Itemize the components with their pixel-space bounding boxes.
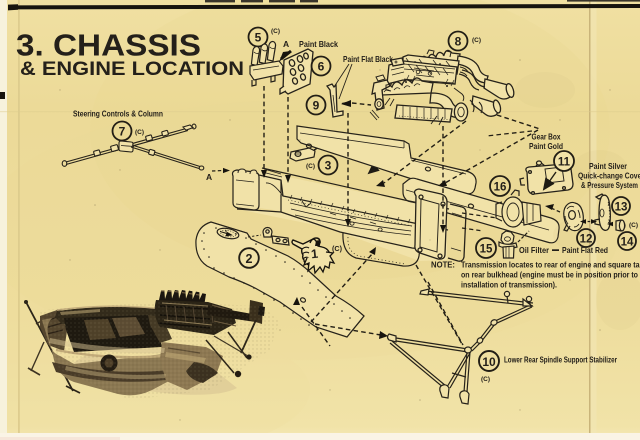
- svg-text:6: 6: [318, 60, 325, 74]
- svg-text:NOTE:: NOTE:: [431, 260, 455, 270]
- svg-text:12: 12: [580, 234, 593, 246]
- svg-text:on rear bulkhead (engine must: on rear bulkhead (engine must be in posi…: [461, 270, 638, 280]
- svg-text:(C): (C): [472, 37, 481, 44]
- svg-text:A: A: [283, 39, 289, 49]
- svg-text:5: 5: [255, 31, 262, 45]
- svg-text:Quick-change Cover: Quick-change Cover: [578, 171, 640, 181]
- svg-text:installation of transmission).: installation of transmission).: [461, 280, 557, 290]
- svg-text:& ENGINE LOCATION: & ENGINE LOCATION: [20, 58, 244, 80]
- svg-text:Paint Silver: Paint Silver: [589, 161, 628, 171]
- svg-text:A: A: [206, 172, 212, 182]
- svg-text:2: 2: [246, 252, 253, 266]
- svg-text:11: 11: [558, 157, 571, 169]
- svg-text:16: 16: [494, 182, 507, 194]
- svg-text:3: 3: [325, 159, 332, 173]
- svg-text:(C): (C): [629, 222, 638, 229]
- svg-text:Gear Box: Gear Box: [532, 132, 561, 142]
- svg-text:7: 7: [119, 125, 126, 139]
- svg-text:& Pressure System: & Pressure System: [581, 180, 638, 190]
- svg-text:Steering Controls & Column: Steering Controls & Column: [73, 109, 163, 119]
- svg-text:8: 8: [455, 35, 462, 49]
- svg-text:10: 10: [482, 355, 496, 369]
- svg-text:(C): (C): [271, 28, 280, 35]
- svg-text:Paint Flat Black: Paint Flat Black: [343, 54, 393, 64]
- svg-text:9: 9: [313, 99, 320, 113]
- svg-text:(C): (C): [332, 244, 343, 253]
- svg-text:Paint Flat Red: Paint Flat Red: [562, 245, 608, 255]
- svg-text:Paint Black: Paint Black: [299, 39, 338, 49]
- svg-text:Transmission locates to rear o: Transmission locates to rear of engine a…: [461, 260, 640, 270]
- svg-text:14: 14: [621, 237, 634, 249]
- svg-text:(C): (C): [306, 163, 315, 170]
- svg-text:Paint Gold: Paint Gold: [529, 141, 563, 151]
- svg-text:13: 13: [615, 202, 628, 214]
- svg-text:(C): (C): [481, 376, 490, 383]
- svg-text:Lower Rear Spindle Support Sta: Lower Rear Spindle Support Stabilizer: [504, 355, 617, 365]
- svg-text:(C): (C): [135, 129, 144, 136]
- svg-text:15: 15: [480, 244, 493, 256]
- svg-text:Oil Filter: Oil Filter: [519, 245, 550, 255]
